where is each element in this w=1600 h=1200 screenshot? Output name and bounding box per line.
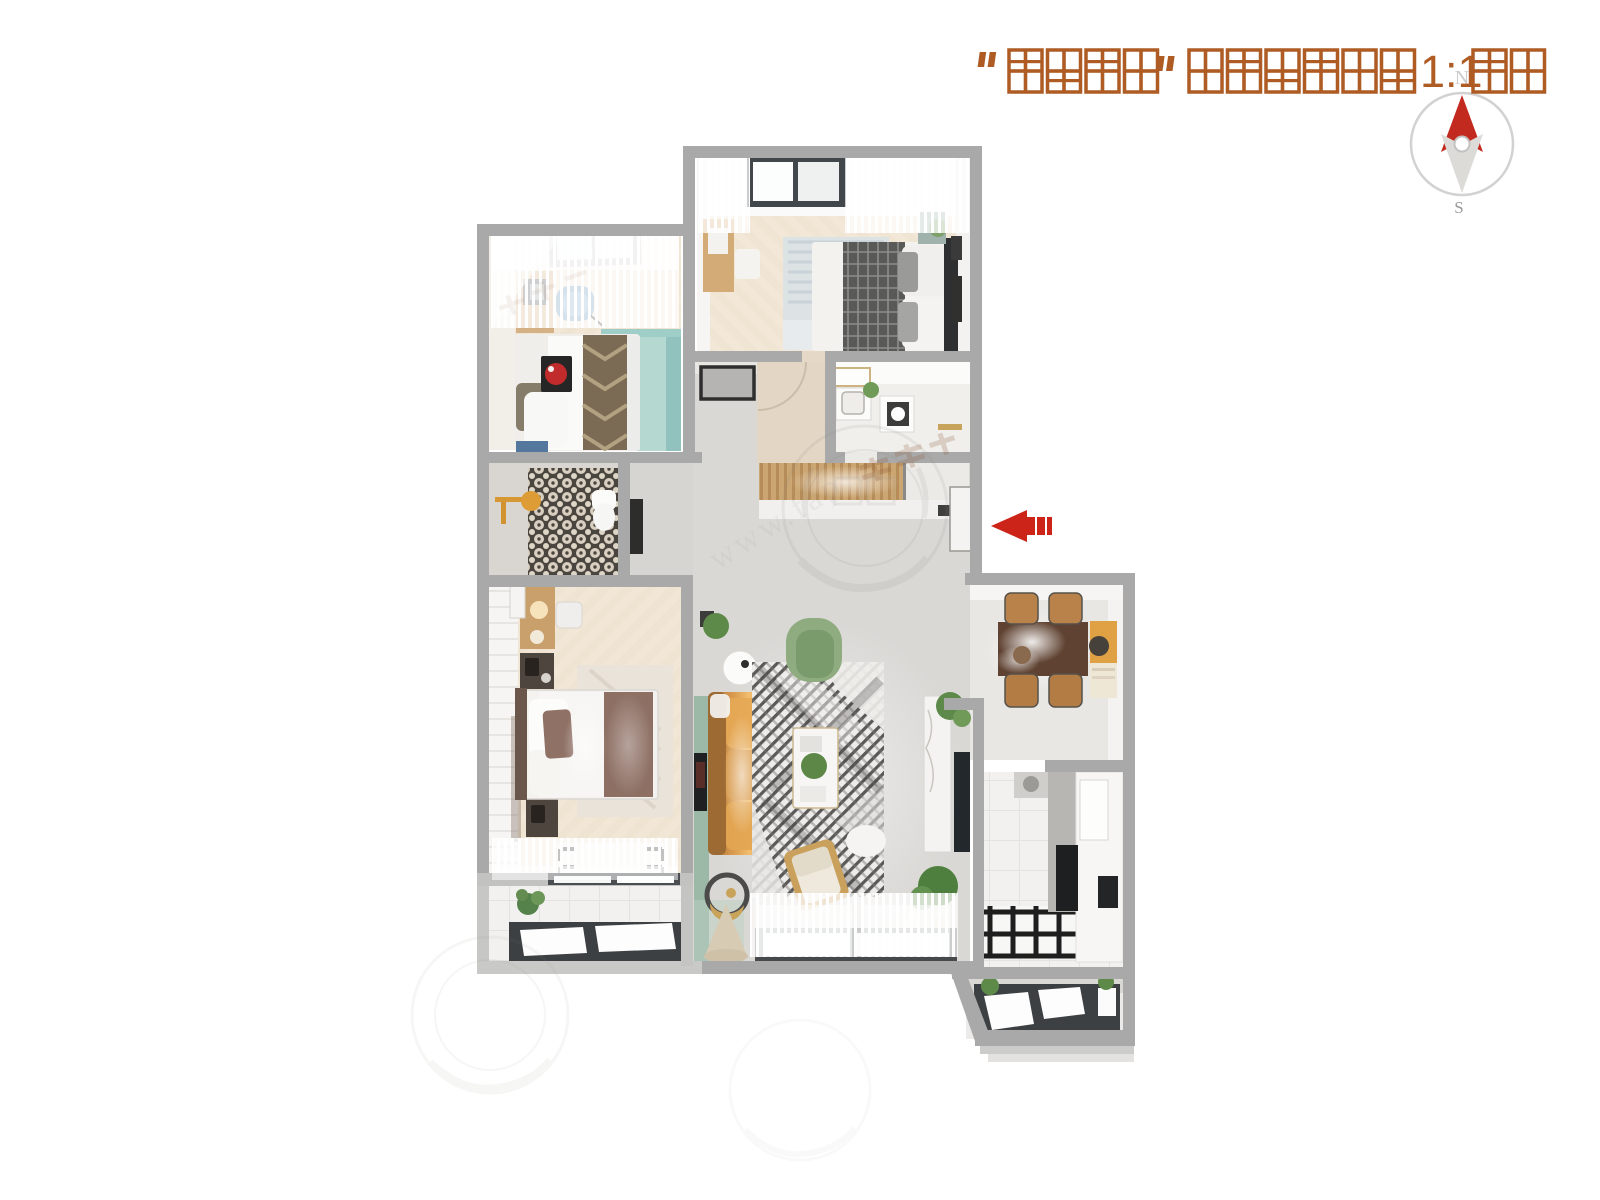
svg-text:S: S [1454,198,1463,217]
